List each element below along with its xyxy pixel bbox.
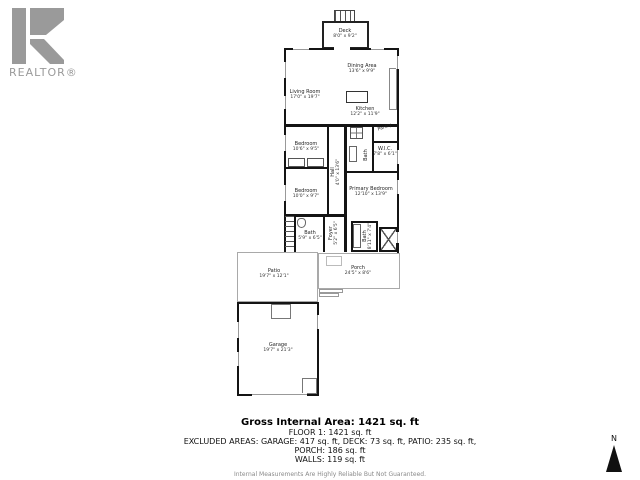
bathtub xyxy=(353,224,361,248)
summary-line: FLOOR 1: 1421 sq. ft xyxy=(60,428,600,437)
window-marker xyxy=(284,96,287,109)
room-label-hall: Hall 4'0" x 13'6" xyxy=(330,159,342,185)
realtor-logo-icon xyxy=(10,8,64,64)
room-label-porch: Porch 24'5" x 8'6" xyxy=(345,265,371,277)
closet-box xyxy=(288,158,305,167)
brand-label: REALTOR® xyxy=(9,66,78,79)
room-label-bedroom-1: Bedroom 10'6" x 9'5" xyxy=(293,141,319,153)
room-label-garage: Garage 19'7" x 21'3" xyxy=(263,342,292,354)
room-label-bath-2: Bath 5'9" x 6'5" xyxy=(298,230,322,242)
window-marker xyxy=(396,180,399,194)
area-summary: Gross Internal Area: 1421 sq. ft FLOOR 1… xyxy=(60,417,600,478)
window-marker xyxy=(284,62,287,78)
summary-line: WALLS: 119 sq. ft xyxy=(60,455,600,464)
wall-segment xyxy=(372,141,399,143)
wall-segment xyxy=(284,167,329,169)
compass-north-label: N xyxy=(607,434,621,443)
room-label-foyer: Foyer 5'2" x 6'5" xyxy=(328,221,340,245)
room-label-bath-1: Bath xyxy=(363,149,369,161)
wall-segment xyxy=(344,124,347,252)
window-marker xyxy=(284,135,287,151)
window-marker xyxy=(316,315,319,329)
north-arrow-icon xyxy=(606,445,622,472)
room-label-bedroom-2: Bedroom 10'0" x 9'7" xyxy=(293,188,319,200)
porch-steps xyxy=(319,293,339,297)
window-marker xyxy=(396,232,399,243)
kitchen-counter xyxy=(389,68,397,110)
summary-line: EXCLUDED AREAS: GARAGE: 417 sq. ft, DECK… xyxy=(60,437,600,446)
gross-area-title: Gross Internal Area: 1421 sq. ft xyxy=(60,417,600,428)
room-label-kitchen: Kitchen 12'2" x 11'9" xyxy=(350,106,379,118)
room-label-bath-3: Bath 8'11" x 7'4" xyxy=(362,223,374,249)
room-label-wic: W.I.C. 7'8" x 6'1" xyxy=(373,146,397,158)
disclaimer-text: Internal Measurements Are Highly Reliabl… xyxy=(60,471,600,478)
room-label-living: Living Room 17'0" x 19'7" xyxy=(290,89,321,101)
floor-plan-page: REALTOR® xyxy=(0,0,640,480)
window-marker xyxy=(237,352,240,366)
closet-box xyxy=(307,158,324,167)
wall-segment xyxy=(323,214,325,252)
wall-segment xyxy=(327,124,329,216)
room-label-patio: Patio 19'7" x 12'1" xyxy=(259,268,288,280)
garage-door-marker xyxy=(252,393,307,396)
stairs xyxy=(285,216,294,251)
window-marker xyxy=(371,48,384,51)
door-opening xyxy=(334,47,350,52)
room-label-deck: Deck 8'0" x 9'2" xyxy=(333,28,357,40)
wall-segment xyxy=(294,214,296,252)
appliance-grid xyxy=(350,127,363,139)
window-marker xyxy=(284,185,287,201)
room-label-dining: Dining Area 13'6" x 9'9" xyxy=(347,63,376,75)
window-marker xyxy=(396,56,399,69)
porch-landing xyxy=(326,256,342,266)
toilet-icon xyxy=(297,218,306,228)
garage-equipment xyxy=(302,378,317,394)
window-marker xyxy=(237,322,240,338)
bath-vanity xyxy=(349,146,357,162)
garage-equipment xyxy=(271,304,291,319)
window-marker xyxy=(293,48,309,51)
summary-line: PORCH: 186 sq. ft xyxy=(60,446,600,455)
kitchen-island xyxy=(346,91,368,103)
room-label-primary-bedroom: Primary Bedroom 12'10" x 13'9" xyxy=(349,186,393,198)
